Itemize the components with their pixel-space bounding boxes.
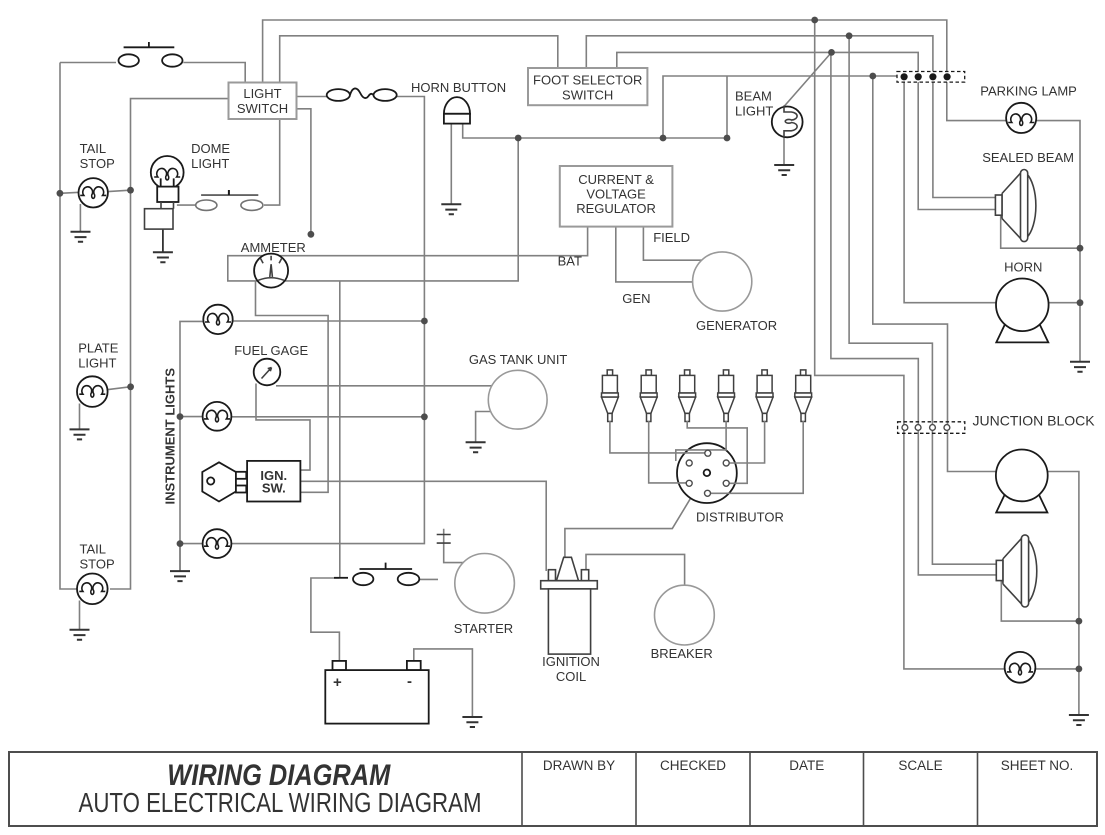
svg-text:FOOT SELECTOR: FOOT SELECTOR [533, 73, 642, 88]
svg-text:GAS TANK UNIT: GAS TANK UNIT [469, 352, 568, 367]
svg-text:COIL: COIL [556, 669, 586, 684]
svg-text:LIGHT: LIGHT [735, 103, 773, 118]
svg-text:FUEL GAGE: FUEL GAGE [234, 343, 308, 358]
svg-text:SEALED BEAM: SEALED BEAM [982, 150, 1074, 165]
svg-text:GEN: GEN [622, 291, 650, 306]
svg-text:STOP: STOP [80, 557, 115, 572]
svg-text:BEAM: BEAM [735, 88, 772, 103]
svg-text:BREAKER: BREAKER [651, 646, 713, 661]
svg-text:TAIL: TAIL [80, 542, 107, 557]
svg-text:SWITCH: SWITCH [562, 88, 613, 103]
svg-text:SWITCH: SWITCH [237, 101, 288, 116]
svg-text:VOLTAGE: VOLTAGE [586, 187, 646, 202]
svg-text:SCALE: SCALE [898, 758, 942, 773]
svg-text:LIGHT: LIGHT [191, 156, 229, 171]
svg-text:STOP: STOP [80, 156, 115, 171]
svg-text:CHECKED: CHECKED [660, 758, 726, 773]
svg-text:PARKING LAMP: PARKING LAMP [980, 84, 1077, 99]
svg-text:DISTRIBUTOR: DISTRIBUTOR [696, 510, 784, 525]
svg-text:DATE: DATE [789, 758, 824, 773]
svg-text:LIGHT: LIGHT [243, 86, 281, 101]
svg-text:DOME: DOME [191, 141, 230, 156]
svg-text:AMMETER: AMMETER [241, 240, 306, 255]
svg-text:+: + [333, 674, 342, 691]
svg-text:SHEET NO.: SHEET NO. [1001, 758, 1074, 773]
svg-text:-: - [407, 673, 412, 690]
svg-text:JUNCTION BLOCK: JUNCTION BLOCK [973, 413, 1096, 429]
svg-text:BAT: BAT [558, 253, 582, 268]
svg-text:AUTO ELECTRICAL WIRING DIAGRAM: AUTO ELECTRICAL WIRING DIAGRAM [79, 787, 482, 818]
svg-text:FIELD: FIELD [653, 230, 690, 245]
svg-text:TAIL: TAIL [80, 141, 107, 156]
svg-text:SW.: SW. [262, 481, 286, 496]
svg-text:IGNITION: IGNITION [542, 654, 600, 669]
svg-text:HORN BUTTON: HORN BUTTON [411, 80, 506, 95]
svg-text:CURRENT &: CURRENT & [578, 172, 654, 187]
svg-text:STARTER: STARTER [454, 621, 513, 636]
svg-text:PLATE: PLATE [78, 341, 119, 356]
svg-text:GENERATOR: GENERATOR [696, 318, 777, 333]
svg-text:INSTRUMENT LIGHTS: INSTRUMENT LIGHTS [163, 368, 178, 505]
svg-text:HORN: HORN [1004, 260, 1042, 275]
svg-text:LIGHT: LIGHT [78, 356, 116, 371]
svg-text:REGULATOR: REGULATOR [576, 201, 656, 216]
svg-text:DRAWN BY: DRAWN BY [543, 758, 615, 773]
